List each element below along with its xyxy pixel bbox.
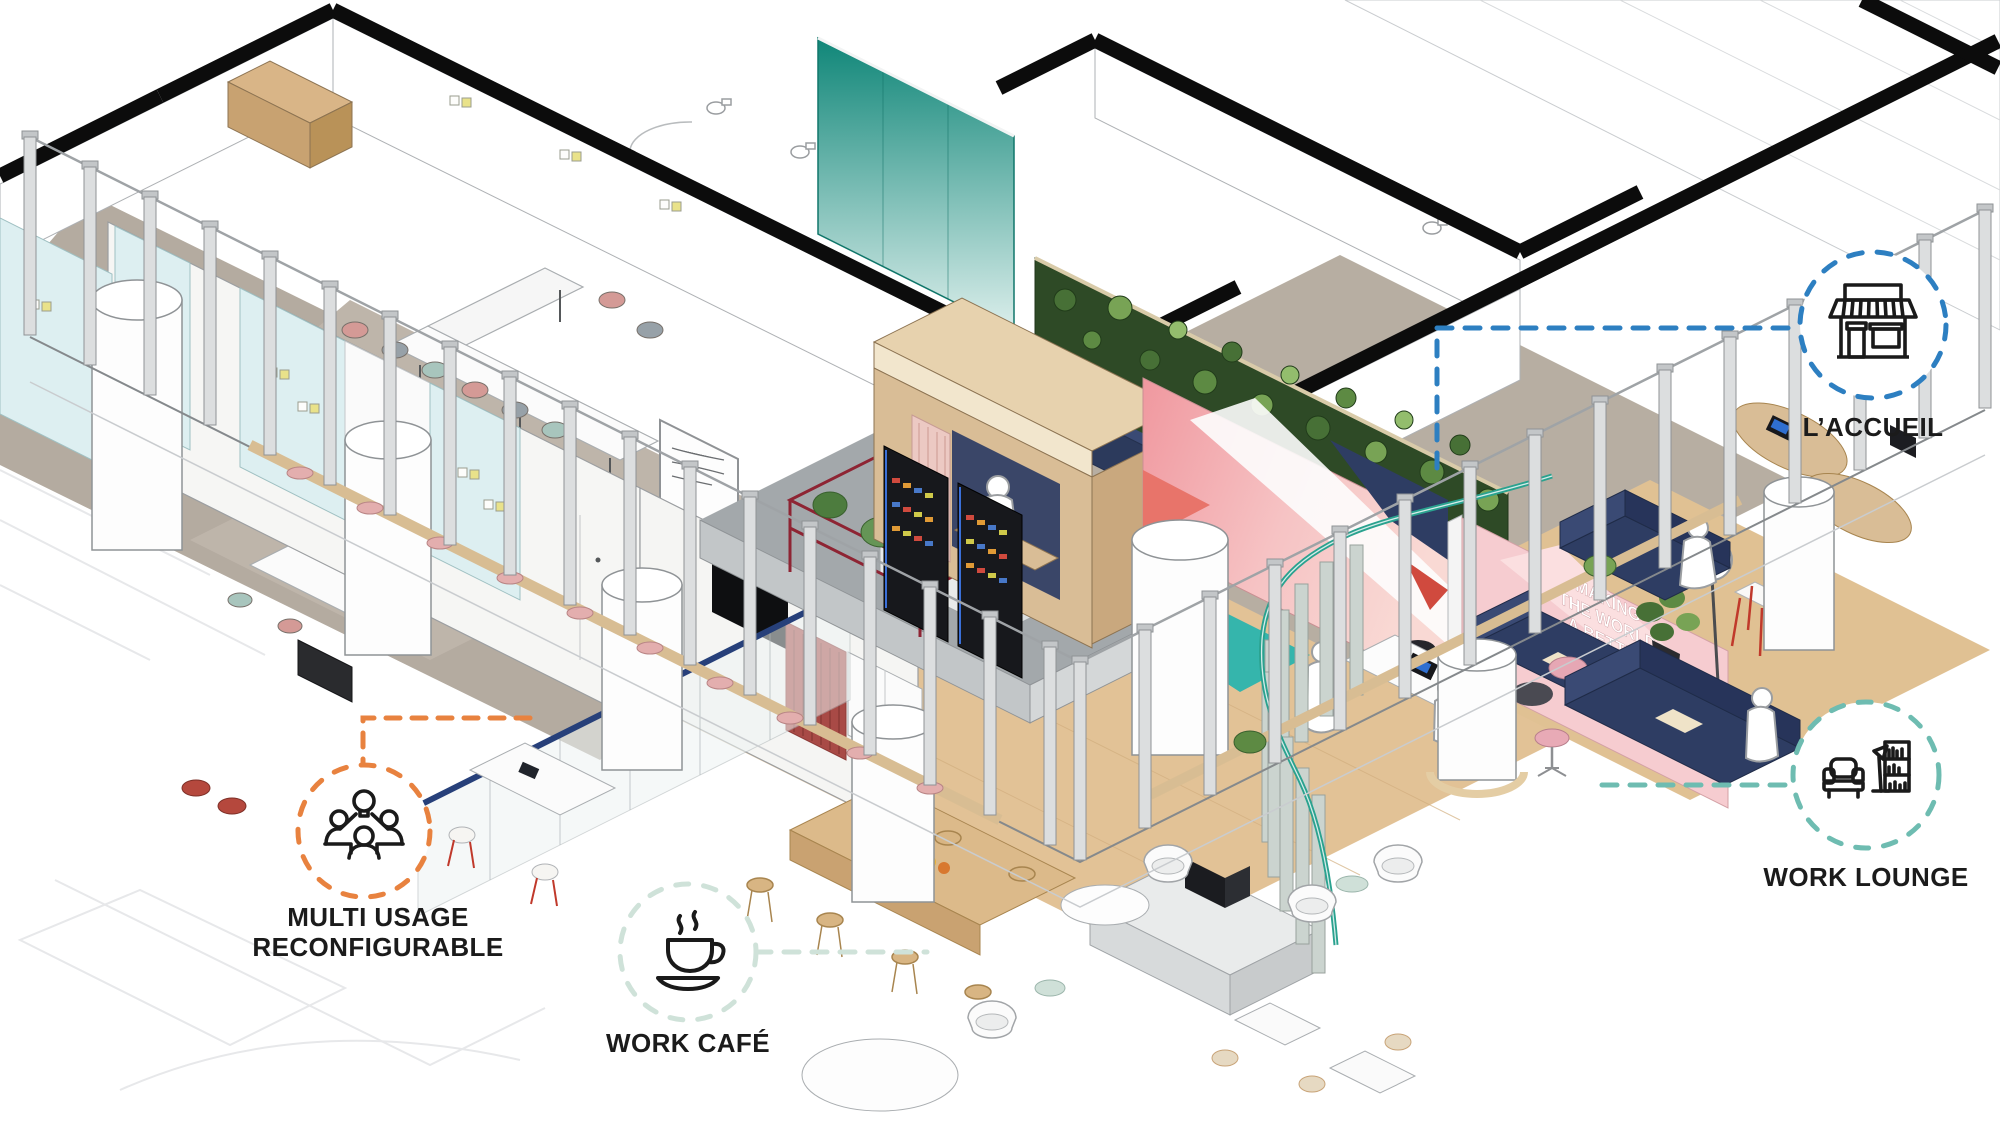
pink-task-chair [1535, 729, 1569, 776]
work-cafe-dashed-circle [620, 884, 756, 1020]
multi-usage-label-line1: MULTI USAGE [218, 902, 538, 932]
work-cafe-label: WORK CAFÉ [538, 1028, 838, 1058]
work-lounge-label: WORK LOUNGE [1716, 862, 2000, 892]
grey-pouf [1511, 682, 1553, 706]
planter [1234, 731, 1266, 753]
floorplan-illustration: MAKING THE WORLD A BETTER HOME [0, 0, 2000, 1142]
multi-usage-label: MULTI USAGE RECONFIGURABLE [218, 902, 538, 962]
multi-usage-label-line2: RECONFIGURABLE [218, 932, 538, 962]
mint-side-table [1336, 876, 1368, 892]
work-lounge-dashed-circle [1793, 702, 1939, 848]
multi-usage-dashed-circle [298, 765, 430, 897]
accueil-label: L’ACCUEIL [1723, 412, 2000, 442]
cafe-small-tables [1212, 1003, 1415, 1093]
isometric-office-floorplan: MAKING THE WORLD A BETTER HOME [0, 0, 2000, 1142]
